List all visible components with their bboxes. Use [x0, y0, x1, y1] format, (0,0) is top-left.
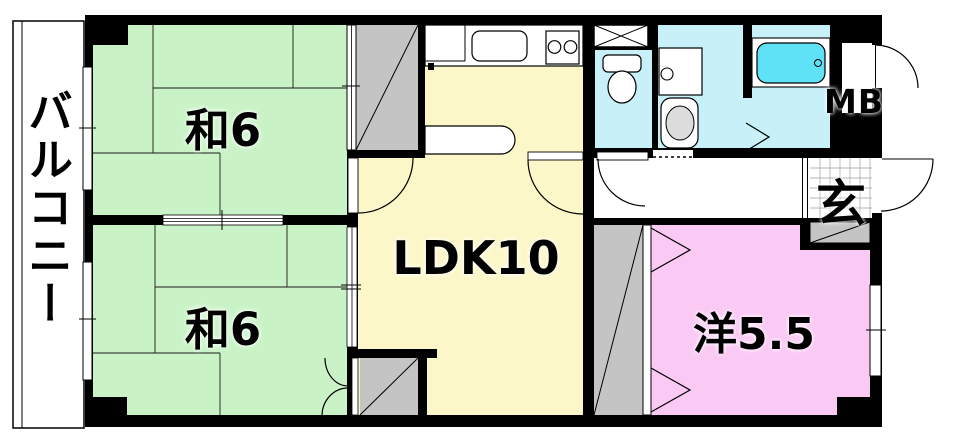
hallway-floor [594, 158, 800, 218]
kitchen-sink-fixture [472, 31, 527, 61]
balcony-label: バルコニー [24, 88, 69, 358]
western-window [870, 285, 881, 376]
bathtub-fixture [752, 38, 830, 87]
room-label-ldk: LDK10 [368, 231, 584, 285]
balcony-window-top [83, 67, 92, 190]
entrance-door [872, 158, 933, 213]
room-label-japanese-bottom: 和6 [158, 293, 288, 358]
faucet-icon [428, 63, 434, 70]
closet-top [342, 25, 418, 150]
floor-plan: バルコニー 和6 和6 LDK10 洋5.5 玄 MB [0, 0, 953, 443]
meter-box-label: MB [824, 82, 884, 121]
washing-machine-fixture [661, 98, 698, 148]
washroom-opening [653, 150, 693, 158]
pipe-space-box [594, 25, 648, 47]
balcony-window-bottom [83, 262, 92, 380]
room-label-japanese-top: 和6 [158, 94, 288, 159]
entrance-label: 玄 [811, 164, 871, 236]
island-counter [425, 126, 515, 154]
washbasin-fixture [659, 48, 702, 95]
stove-fixture [546, 31, 579, 64]
room-label-western: 洋5.5 [648, 298, 860, 362]
